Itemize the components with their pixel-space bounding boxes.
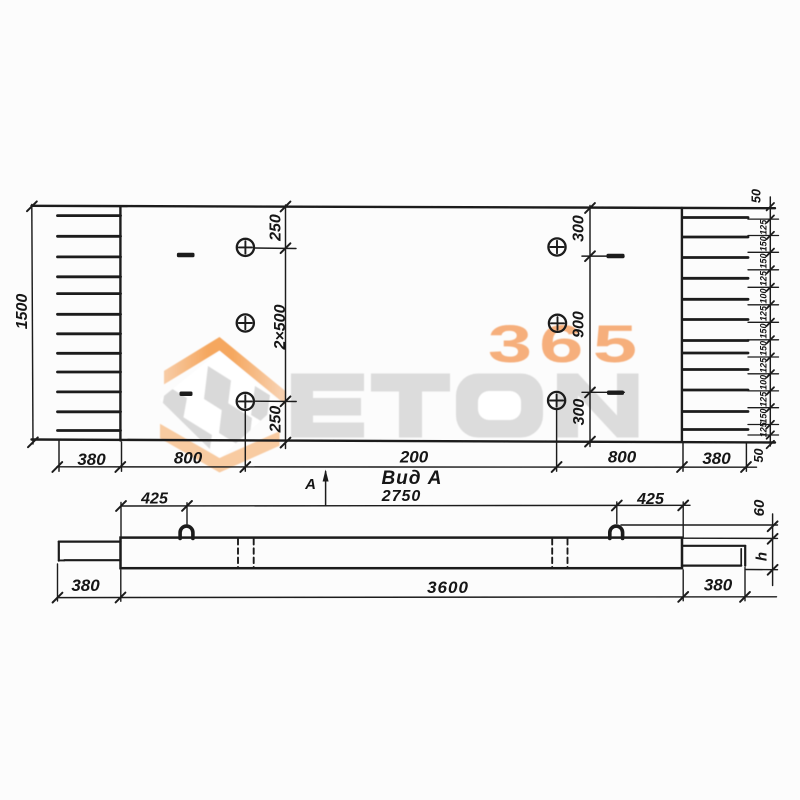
- svg-text:800: 800: [608, 448, 637, 467]
- svg-text:150: 150: [759, 341, 769, 356]
- svg-text:h: h: [753, 552, 770, 561]
- svg-text:3: 3: [488, 315, 532, 374]
- svg-text:150: 150: [759, 409, 769, 424]
- svg-text:125: 125: [759, 391, 769, 407]
- svg-text:150: 150: [759, 324, 769, 339]
- svg-text:2×500: 2×500: [272, 304, 289, 350]
- svg-text:50: 50: [750, 189, 764, 203]
- svg-text:Вид А: Вид А: [381, 468, 442, 489]
- svg-text:425: 425: [140, 490, 169, 507]
- svg-text:125: 125: [759, 270, 769, 286]
- svg-text:300: 300: [571, 399, 588, 426]
- svg-text:150: 150: [759, 254, 769, 269]
- svg-text:800: 800: [174, 449, 203, 468]
- svg-text:1500: 1500: [14, 294, 31, 330]
- svg-text:380: 380: [77, 450, 106, 469]
- svg-text:425: 425: [636, 491, 665, 508]
- svg-text:100: 100: [759, 289, 769, 304]
- svg-text:А: А: [304, 476, 316, 493]
- svg-text:300: 300: [570, 215, 587, 242]
- svg-text:150: 150: [759, 236, 769, 251]
- svg-text:125: 125: [759, 357, 769, 373]
- svg-text:125: 125: [759, 219, 769, 235]
- svg-text:60: 60: [751, 499, 768, 516]
- svg-text:50: 50: [752, 449, 766, 463]
- svg-text:125: 125: [759, 305, 769, 321]
- svg-text:5: 5: [593, 315, 637, 374]
- svg-text:380: 380: [702, 449, 731, 468]
- svg-text:200: 200: [399, 448, 429, 467]
- svg-text:380: 380: [71, 576, 100, 595]
- svg-text:380: 380: [704, 576, 733, 595]
- svg-text:900: 900: [570, 311, 587, 338]
- svg-text:125: 125: [759, 421, 769, 437]
- svg-text:2750: 2750: [381, 488, 422, 505]
- svg-text:250: 250: [267, 406, 284, 434]
- svg-text:3600: 3600: [427, 578, 469, 597]
- svg-text:100: 100: [759, 375, 769, 390]
- svg-text:250: 250: [267, 214, 284, 242]
